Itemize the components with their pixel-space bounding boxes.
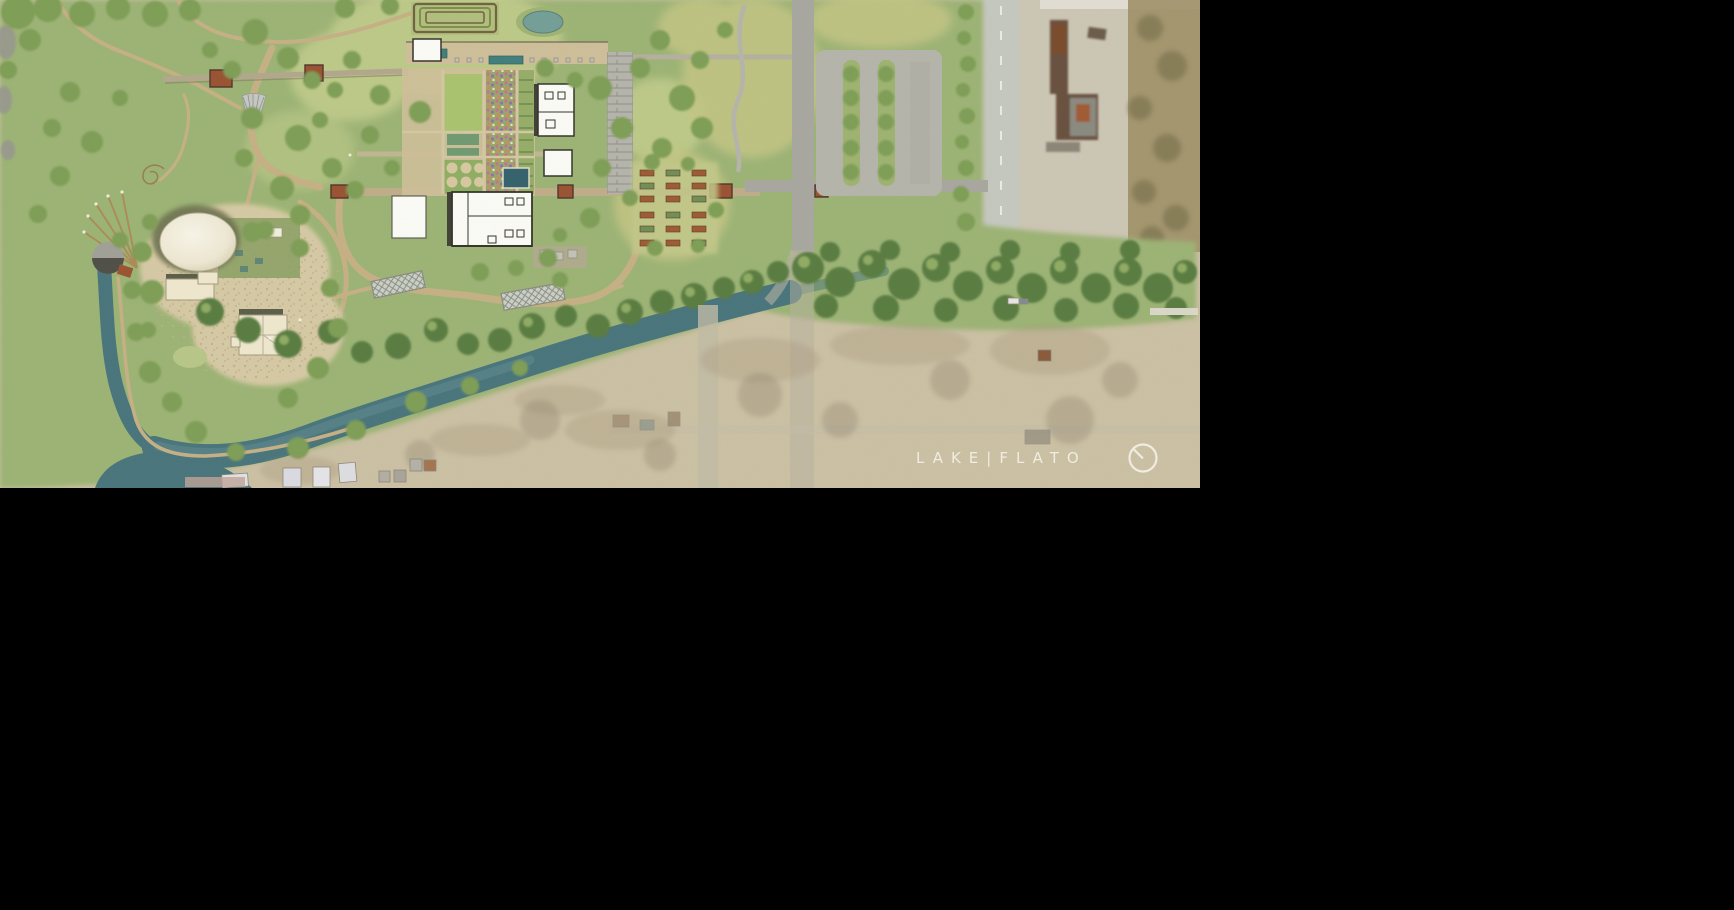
logo-text: LAKE|FLATO xyxy=(916,449,1087,467)
site-plan-rendering: LAKE|FLATO xyxy=(0,0,1200,488)
paper-texture xyxy=(0,0,1200,488)
screenshot-canvas: LAKE|FLATO xyxy=(0,0,1734,910)
